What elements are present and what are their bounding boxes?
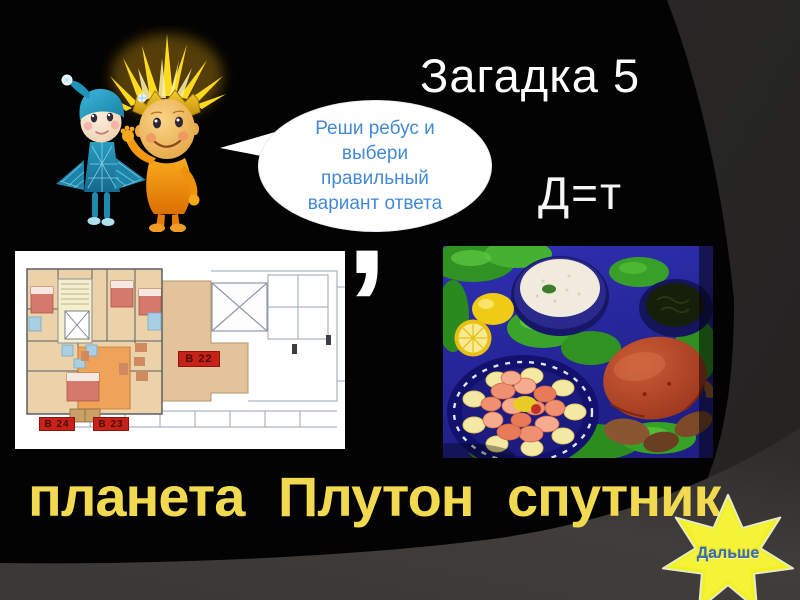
characters-image (26, 12, 262, 232)
answer-option-pluton[interactable]: Плутон (278, 468, 474, 526)
answer-option-planeta[interactable]: планета (28, 468, 244, 526)
next-button-label: Дальше (658, 545, 798, 563)
next-button[interactable]: Дальше (658, 492, 798, 600)
plan-label-b24: В 24 (39, 417, 75, 431)
seafood-image (443, 246, 713, 458)
rebus-comma: , (346, 146, 406, 306)
substitution-hint: Д=т (538, 166, 698, 220)
slide: Загадка 5 Реши ребус и выбери правильный… (0, 0, 800, 600)
plan-label-b22: В 22 (178, 351, 220, 367)
floor-plan-image: В 22 В 24 В 23 (15, 251, 345, 449)
boy-character (121, 99, 200, 232)
rice-bowl (511, 256, 609, 336)
slide-title: Загадка 5 (420, 48, 720, 103)
plan-label-b23: В 23 (93, 417, 129, 431)
